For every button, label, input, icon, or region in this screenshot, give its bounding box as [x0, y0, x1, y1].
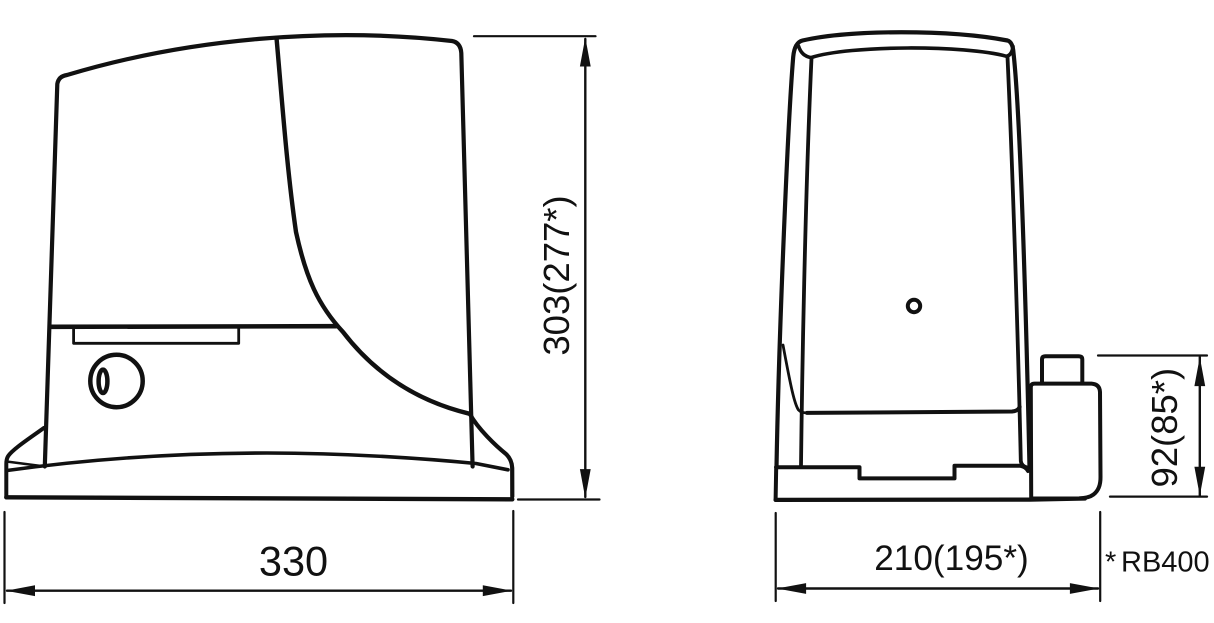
svg-text:210(195*): 210(195*)	[874, 539, 1029, 578]
svg-text:330: 330	[259, 538, 328, 585]
svg-text:RB400: RB400	[1121, 547, 1210, 579]
svg-text:92(85*): 92(85*)	[1144, 368, 1185, 488]
svg-text:303(277*): 303(277*)	[536, 195, 577, 355]
svg-text:*: *	[1105, 547, 1116, 579]
